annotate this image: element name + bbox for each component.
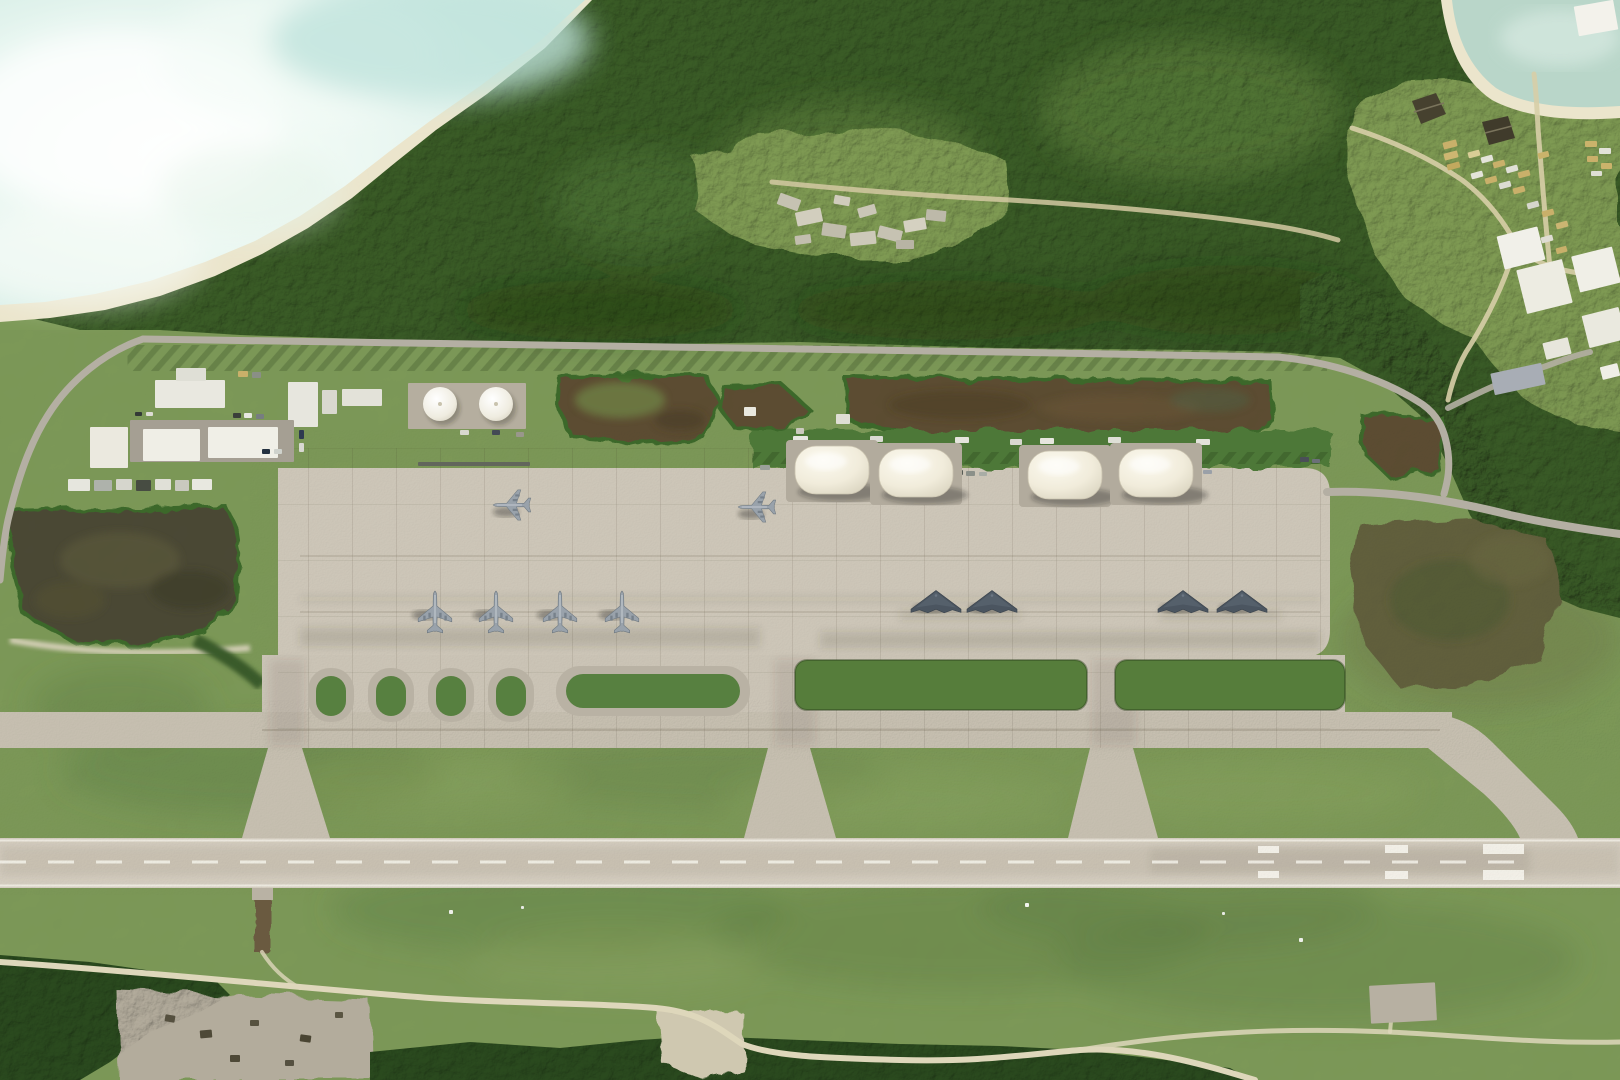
ground-object: [175, 480, 189, 491]
ground-object: [146, 412, 153, 416]
ground-object: [896, 240, 914, 249]
ground-object: [155, 479, 171, 490]
ground-object: [1312, 459, 1320, 463]
ground-object: [1040, 438, 1054, 444]
ground-object: [1587, 156, 1598, 162]
ground-object: [233, 413, 241, 418]
ground-object: [136, 480, 151, 491]
ground-object: [256, 414, 264, 419]
ground-object: [966, 471, 975, 476]
ground-object: [836, 414, 850, 424]
ground-object: [1299, 938, 1303, 942]
scar-pavement-tip: [252, 888, 273, 900]
ground-object: [342, 389, 382, 406]
ground-object: [1591, 171, 1602, 176]
satellite-screenshot: [0, 0, 1620, 1080]
ground-object: [849, 231, 876, 247]
ground-object: [1369, 982, 1437, 1023]
ground-object: [90, 427, 128, 468]
ground-object: [521, 906, 524, 909]
ground-object: [94, 480, 112, 491]
ground-object: [418, 462, 530, 466]
ground-object: [274, 449, 282, 454]
ground-object: [492, 430, 500, 435]
ground-object: [285, 1060, 294, 1066]
ground-object: [192, 479, 212, 490]
ground-object: [979, 472, 987, 476]
ground-object: [116, 479, 132, 490]
ground-object: [796, 428, 804, 434]
ground-object: [1203, 470, 1212, 474]
ground-object: [1585, 141, 1597, 147]
ground-object: [299, 430, 304, 439]
ground-object: [252, 372, 261, 378]
concrete-texture-2: [0, 700, 1620, 895]
ground-object: [760, 465, 770, 470]
ground-object: [925, 209, 946, 222]
ground-object: [238, 371, 248, 377]
ground-object: [176, 368, 206, 381]
ground-object: [1599, 148, 1611, 154]
ground-object: [1108, 437, 1121, 443]
satellite-view: [0, 0, 1620, 1080]
ground-object: [1010, 439, 1022, 445]
ground-object: [155, 380, 225, 408]
ground-object: [135, 412, 142, 416]
ground-object: [1025, 903, 1029, 907]
ground-object: [244, 413, 252, 418]
ground-object: [68, 479, 90, 491]
ground-object: [955, 437, 969, 443]
grass-island-strips: [556, 660, 1345, 716]
ground-object: [335, 1012, 343, 1018]
ground-object: [322, 390, 337, 414]
ground-object: [1601, 163, 1612, 169]
ground-object: [143, 429, 200, 461]
ground-object: [230, 1055, 240, 1062]
ground-object: [1300, 457, 1309, 462]
ground-object: [449, 910, 453, 914]
ground-object: [460, 430, 469, 435]
ground-object: [200, 1029, 213, 1038]
ground-object: [744, 407, 756, 416]
ground-object: [299, 443, 304, 452]
ground-object: [262, 449, 270, 454]
ground-object: [516, 432, 524, 437]
ground-object: [250, 1020, 259, 1026]
ground-object: [1222, 912, 1225, 915]
